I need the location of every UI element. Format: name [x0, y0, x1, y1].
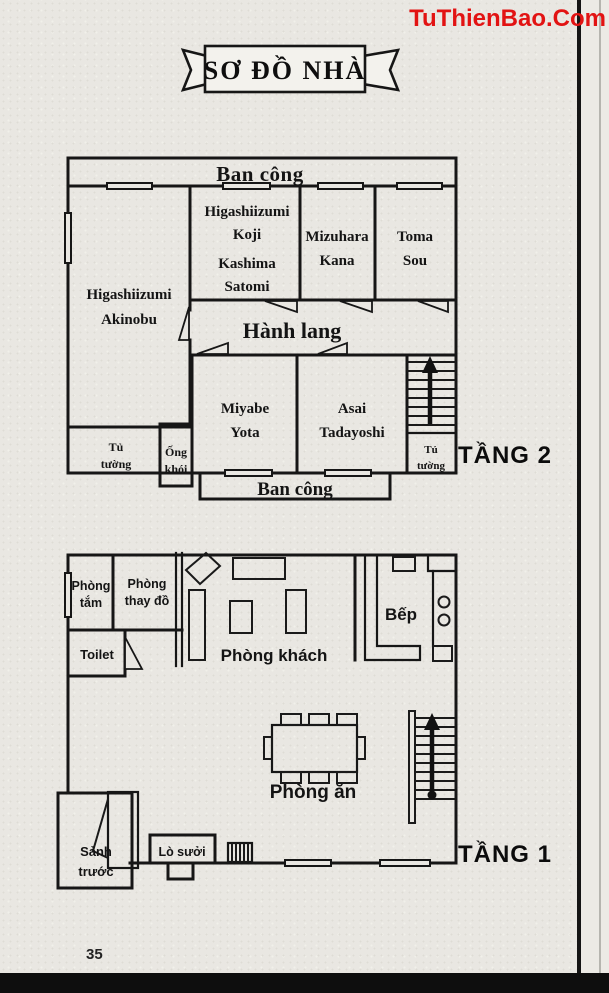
floor1-windows: [65, 573, 430, 866]
chair: [281, 714, 301, 725]
door-swing: [265, 301, 297, 312]
closet-right-label: Tủtường: [417, 444, 445, 472]
side-table: [186, 553, 220, 584]
dining-table: [272, 725, 357, 772]
floor1-plan: Phòngtắm Phòngthay đồ Toilet Phòng khách…: [58, 553, 552, 888]
stairs-arrow-head-icon: [424, 713, 440, 730]
window: [225, 470, 272, 476]
right-margin-strip: [581, 0, 609, 974]
changing-room-label: Phòngthay đồ: [125, 577, 170, 608]
door-swing: [418, 301, 448, 312]
page-title: SƠ ĐỒ NHÀ: [204, 56, 366, 85]
radiator: [228, 843, 252, 862]
room-mizuhara-label: MizuharaKana: [305, 229, 369, 269]
shelf: [189, 590, 205, 660]
closet-left-label: Tủtường: [101, 440, 132, 471]
window: [285, 860, 331, 866]
sofa: [233, 558, 285, 579]
chair: [264, 737, 272, 759]
fireplace-label: Lò sưởi: [158, 845, 205, 859]
door-swing: [179, 307, 189, 340]
floor2-stairs: [407, 356, 456, 425]
fireplace-hearth: [168, 863, 193, 879]
door-swing: [318, 343, 347, 354]
floor2-plan: Ban công HigashiizumiKojiKashimaSatomi M…: [65, 158, 552, 500]
ribbon-right-tail: [363, 50, 398, 90]
room-asai-label: AsaiTadayoshi: [319, 401, 384, 441]
window: [325, 470, 371, 476]
living-room-furniture: [186, 553, 306, 660]
balcony-bottom-label: Ban công: [257, 479, 333, 500]
dining-room-label: Phòng ăn: [270, 782, 357, 803]
bottom-black-bar: [0, 973, 609, 993]
chair: [357, 737, 365, 759]
window: [380, 860, 430, 866]
house-floorplan-diagram: SƠ ĐỒ NHÀ TuThienBao.Com: [0, 0, 609, 993]
armchair: [230, 601, 252, 633]
toilet-label: Toilet: [80, 647, 114, 662]
stair-treads: [415, 718, 455, 799]
page-edge-line: [599, 0, 601, 974]
title-ribbon: SƠ ĐỒ NHÀ: [183, 46, 398, 92]
window: [65, 573, 71, 617]
floor2-labels: Ban công HigashiizumiKojiKashimaSatomi M…: [86, 162, 445, 500]
kitchen-label: Bếp: [385, 605, 417, 624]
room-koji-kashima-label: HigashiizumiKojiKashimaSatomi: [204, 204, 289, 295]
watermark-text: TuThienBao.Com: [409, 5, 606, 32]
hallway-label: Hành lang: [243, 318, 341, 343]
chair: [337, 714, 357, 725]
sink-basin-icon: [439, 615, 450, 626]
chair: [309, 714, 329, 725]
balcony-top-label: Ban công: [216, 162, 303, 186]
window: [318, 183, 363, 189]
floor1-stairs: [409, 711, 455, 823]
stair-rail: [409, 711, 415, 823]
door-swing: [197, 343, 228, 354]
window: [397, 183, 442, 189]
binding-line: [577, 0, 581, 974]
door-swing: [125, 637, 142, 669]
kitchen-cabinet: [433, 646, 452, 661]
living-room-label: Phòng khách: [221, 646, 328, 665]
armchair: [286, 590, 306, 633]
room-akinobu-label: HigashiizumiAkinobu: [86, 287, 171, 328]
scanned-book-page: SƠ ĐỒ NHÀ TuThienBao.Com: [0, 0, 609, 993]
floor2-label: TẦNG 2: [458, 441, 552, 469]
floor1-label: TẦNG 1: [458, 840, 552, 868]
room-toma-label: TomaSou: [397, 229, 434, 269]
page-number: 35: [86, 946, 103, 963]
room-miyabe-label: MiyabeYota: [221, 401, 270, 441]
sink-basin-icon: [439, 597, 450, 608]
bathroom-label: Phòngtắm: [72, 579, 111, 610]
stairs-arrow-base-dot: [428, 791, 437, 800]
stairs-arrow-head-icon: [422, 356, 438, 373]
window: [65, 213, 71, 263]
stove: [393, 557, 415, 571]
chimney-label: Ốngkhói: [165, 444, 188, 476]
window: [107, 183, 152, 189]
door-swing: [340, 301, 372, 312]
dining-set: [264, 714, 365, 783]
kitchen-corner-counter: [428, 555, 456, 571]
